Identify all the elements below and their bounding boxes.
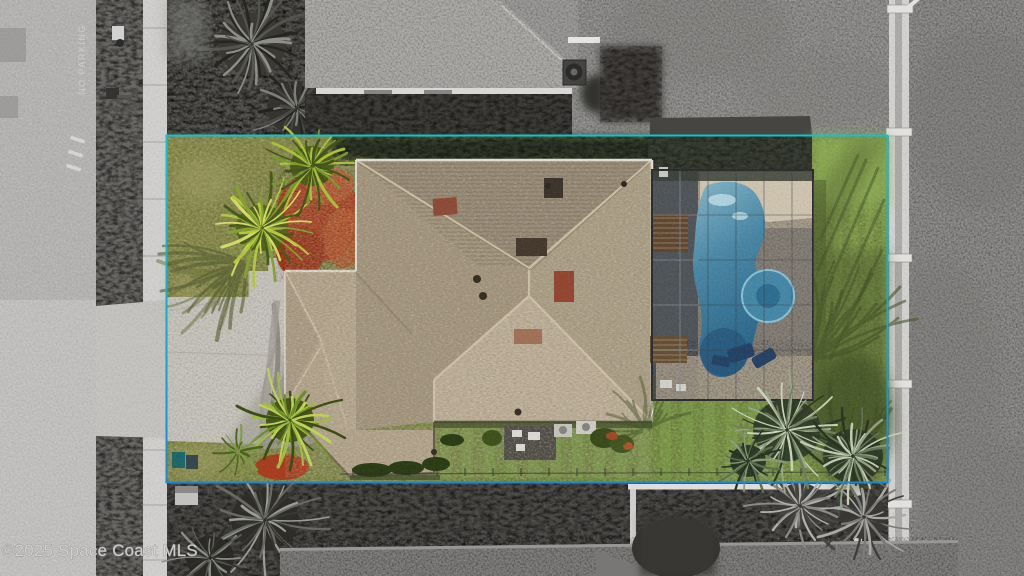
svg-text:NO PARKING: NO PARKING: [77, 24, 87, 95]
svg-text:©2025 Space Coast MLS: ©2025 Space Coast MLS: [2, 541, 198, 560]
